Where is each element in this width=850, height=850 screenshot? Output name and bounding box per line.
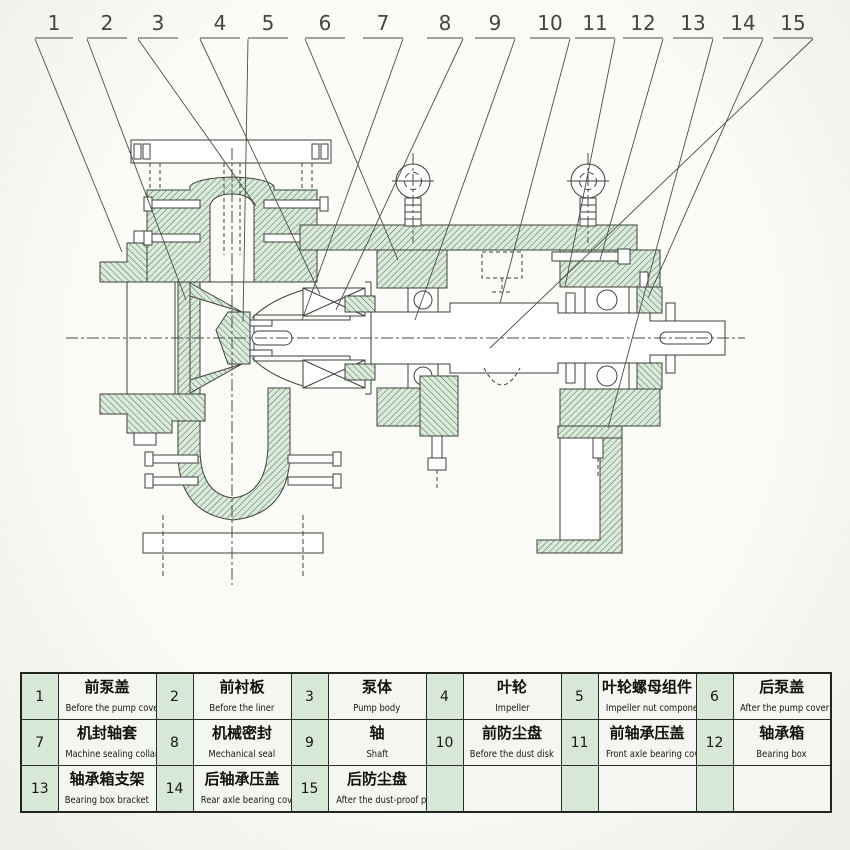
part-number: 4 xyxy=(426,673,463,720)
part-number: 3 xyxy=(291,673,328,720)
table-row-1: 1 前泵盖Before the pump cover 2 前衬板Before t… xyxy=(21,673,831,720)
part-label: 轴承箱支架Bearing box bracket xyxy=(58,766,156,813)
empty-cell xyxy=(426,766,463,813)
part-number: 1 xyxy=(21,673,58,720)
part-label: 后轴承压盖Rear axle bearing cover xyxy=(193,766,291,813)
part-number: 12 xyxy=(696,720,733,766)
parts-table: 1 前泵盖Before the pump cover 2 前衬板Before t… xyxy=(20,672,832,813)
part-label: 前防尘盘Before the dust disk xyxy=(463,720,561,766)
part-number: 15 xyxy=(291,766,328,813)
callout-number-15: 15 xyxy=(778,13,808,33)
callout-number-13: 13 xyxy=(678,13,708,33)
part-number: 5 xyxy=(561,673,598,720)
callout-number-1: 1 xyxy=(39,13,69,33)
callout-number-4: 4 xyxy=(205,13,235,33)
scanned-pump-diagram-page: 1 2 3 4 5 6 7 8 9 10 11 12 13 14 15 1 前泵… xyxy=(0,0,850,850)
part-number: 14 xyxy=(156,766,193,813)
part-number: 7 xyxy=(21,720,58,766)
rear-liner-bottom xyxy=(420,376,458,490)
part-label: 叶轮Impeller xyxy=(463,673,561,720)
part-number: 2 xyxy=(156,673,193,720)
callout-number-6: 6 xyxy=(310,13,340,33)
table-row-3: 13 轴承箱支架Bearing box bracket 14 后轴承压盖Rear… xyxy=(21,766,831,813)
callout-number-11: 11 xyxy=(580,13,610,33)
empty-cell xyxy=(463,766,561,813)
part-label: 机封轴套Machine sealing collar xyxy=(58,720,156,766)
part-number: 11 xyxy=(561,720,598,766)
part-number: 10 xyxy=(426,720,463,766)
table-row-2: 7 机封轴套Machine sealing collar 8 机械密封Mecha… xyxy=(21,720,831,766)
callout-number-9: 9 xyxy=(480,13,510,33)
empty-cell xyxy=(733,766,831,813)
empty-cell xyxy=(561,766,598,813)
part-number: 9 xyxy=(291,720,328,766)
callout-number-2: 2 xyxy=(92,13,122,33)
part-label: 轴Shaft xyxy=(328,720,426,766)
empty-cell xyxy=(696,766,733,813)
lower-casing-studs xyxy=(145,452,341,488)
part-label: 泵体Pump body xyxy=(328,673,426,720)
pump-cross-section-drawing xyxy=(0,0,850,660)
callout-number-7: 7 xyxy=(368,13,398,33)
bearing-frame-top-plate xyxy=(300,225,637,250)
part-label: 前轴承压盖Front axle bearing cover xyxy=(598,720,696,766)
part-label: 叶轮螺母组件Impeller nut component xyxy=(598,673,696,720)
callout-number-8: 8 xyxy=(430,13,460,33)
part-label: 后泵盖After the pump cover xyxy=(733,673,831,720)
bearing-box-bracket xyxy=(537,426,622,553)
callout-number-12: 12 xyxy=(628,13,658,33)
part-number: 8 xyxy=(156,720,193,766)
part-label: 轴承箱Bearing box xyxy=(733,720,831,766)
bottom-flange xyxy=(143,515,323,578)
part-label: 机械密封Mechanical seal xyxy=(193,720,291,766)
callout-number-3: 3 xyxy=(143,13,173,33)
callout-number-10: 10 xyxy=(535,13,565,33)
callout-number-5: 5 xyxy=(253,13,283,33)
part-number: 6 xyxy=(696,673,733,720)
empty-cell xyxy=(598,766,696,813)
part-number: 13 xyxy=(21,766,58,813)
callout-number-14: 14 xyxy=(728,13,758,33)
part-label: 前泵盖Before the pump cover xyxy=(58,673,156,720)
part-label: 前衬板Before the liner xyxy=(193,673,291,720)
part-label: 后防尘盘After the dust-proof plate xyxy=(328,766,426,813)
